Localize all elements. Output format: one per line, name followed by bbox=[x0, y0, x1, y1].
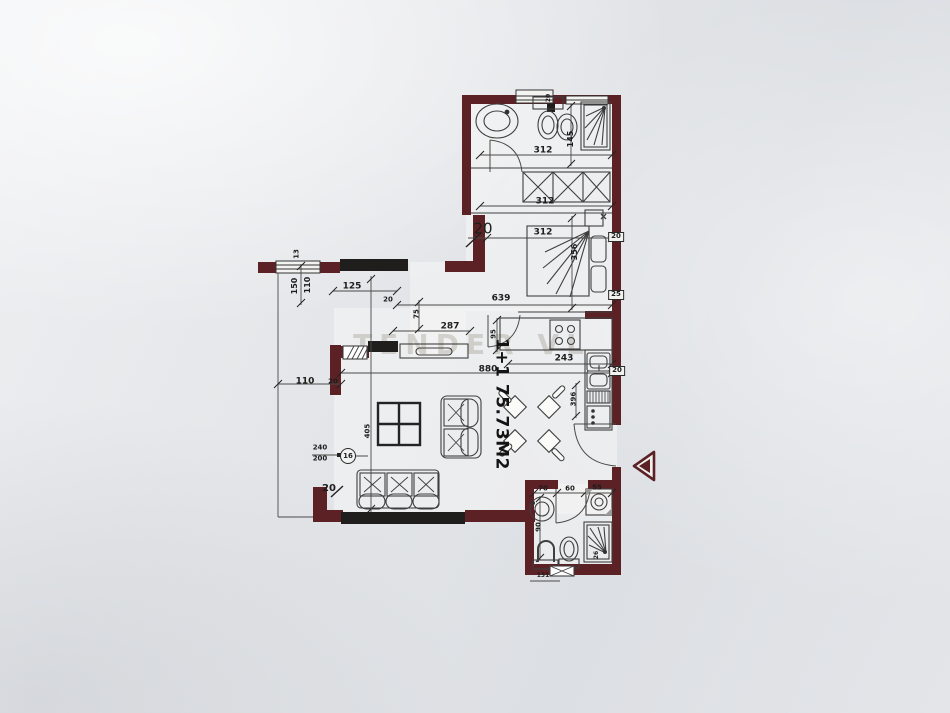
sink-icon bbox=[476, 104, 518, 138]
window-left bbox=[276, 261, 320, 273]
dining-set-icon bbox=[498, 385, 566, 462]
shower2-icon bbox=[584, 522, 612, 562]
sideboard-icon bbox=[400, 344, 468, 358]
radiator-icon bbox=[587, 391, 610, 403]
doors bbox=[488, 140, 616, 523]
kitchen-counter bbox=[500, 318, 612, 350]
bidet-icon bbox=[557, 114, 577, 140]
bathroom-top bbox=[476, 97, 610, 150]
sofa-3seat-icon bbox=[357, 470, 439, 509]
nightstand-icon bbox=[585, 210, 606, 226]
floor-plan-drawing bbox=[0, 0, 950, 713]
stove-icon bbox=[550, 320, 580, 349]
bathroom-bottom bbox=[530, 489, 612, 576]
coffee-table-icon bbox=[378, 403, 420, 445]
bed-icon bbox=[527, 226, 606, 297]
bedroom bbox=[518, 210, 612, 312]
entry-arrow-icon bbox=[634, 452, 654, 480]
floor-plan: TENDER VL bbox=[0, 0, 950, 713]
kitchen-sink-icon bbox=[587, 353, 610, 389]
kitchen-column bbox=[585, 350, 612, 430]
wall-hatch bbox=[343, 346, 367, 359]
living-room bbox=[343, 344, 481, 509]
door-bedroom bbox=[488, 315, 520, 347]
door-bathroom2 bbox=[556, 489, 590, 523]
appliance-icon bbox=[587, 406, 610, 428]
toilet2-icon bbox=[559, 537, 579, 568]
shower-icon bbox=[581, 102, 610, 150]
door-bathroom-top bbox=[490, 140, 522, 172]
filled-walls bbox=[340, 103, 555, 524]
vent-icon bbox=[550, 566, 574, 576]
sofa-2seat-icon bbox=[441, 396, 481, 458]
